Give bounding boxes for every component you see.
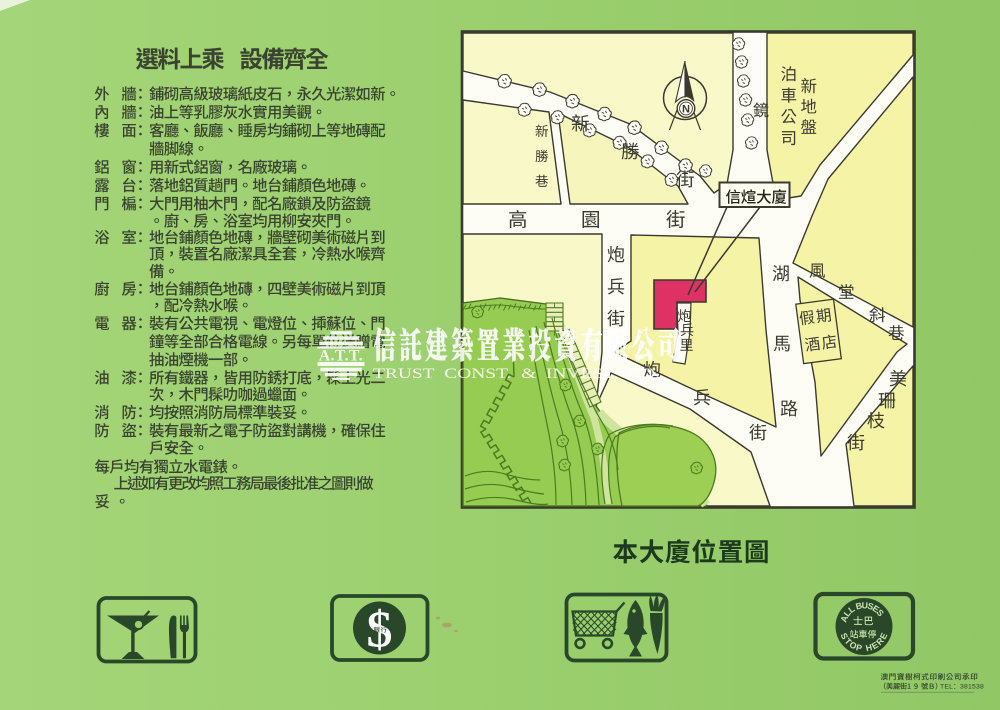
svg-text:TRUST CONST. & INVEST. CO.: TRUST CONST. & INVEST. CO. <box>373 366 660 382</box>
svg-text:TEL：381538: TEL：381538 <box>940 684 984 691</box>
svg-text:$: $ <box>367 602 393 659</box>
svg-text:A.T.T.: A.T.T. <box>319 347 363 364</box>
svg-text:N: N <box>682 104 690 116</box>
